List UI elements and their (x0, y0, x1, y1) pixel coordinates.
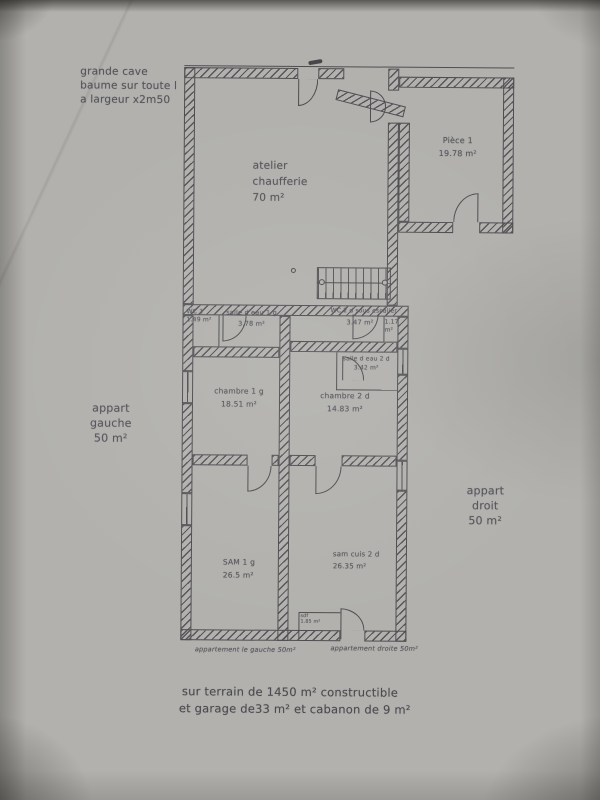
door-arc (298, 79, 318, 106)
wall-top-left (184, 67, 298, 79)
room-label-sdf: sdf 1.85 m² (300, 613, 326, 624)
floorplan-drawing: grande cave baume sur toute l a largeur … (0, 0, 600, 800)
wall-right-lower-c (395, 491, 407, 642)
door-leaf (315, 466, 316, 494)
room-label-chambre1: chambre 1 g 18.51 m² (198, 384, 280, 411)
room-area-wc2: 3.47 m² (347, 318, 381, 326)
room-label-wc2: WC 2 d sous escalier (331, 307, 397, 315)
door-arc (247, 466, 271, 492)
door-arc (340, 608, 364, 630)
staircase-post (319, 279, 325, 285)
door-leaf (477, 193, 478, 222)
room-label-chambre2: chambre 2 d 14.83 m² (304, 389, 386, 416)
wall-annex-top (399, 77, 514, 89)
wall-annex-bottom-a (398, 222, 453, 233)
wall-bottom-a (180, 629, 340, 641)
room-label-piece1: Pièce 1 19.78 m² (421, 134, 495, 161)
wall-right-upper-a (388, 69, 399, 91)
window-symbol (182, 371, 193, 403)
window-symbol (397, 349, 408, 375)
door-arc (315, 466, 341, 494)
footer-terrain-line2: et garage de33 m² et cabanon de 9 m² (179, 700, 449, 719)
wall-bottom-b (364, 630, 406, 641)
wall-chambre1-bottom-a (193, 454, 248, 465)
room-area-wc2-closet: 1.17 m² (384, 319, 406, 335)
wall-under-bath-right (290, 341, 397, 353)
floorplan-photo: grande cave baume sur toute l a largeur … (0, 0, 600, 800)
room-label-sde1: salle d eau 1 g 3.78 m² (224, 307, 278, 329)
staircase-post (382, 280, 388, 286)
wall-chambre2-bottom-b (342, 455, 397, 466)
wall-left-lower-b (181, 403, 193, 493)
room-label-wc1: WC 1 1.49 m² (187, 308, 217, 324)
wall-top-right (318, 68, 344, 79)
wall-chambre2-bottom-a (290, 455, 316, 466)
caption-appartement-droite: appartement droite 50m² (318, 644, 430, 653)
door-leaf (340, 608, 342, 639)
pen-mark (308, 59, 322, 65)
door-arc (453, 193, 478, 222)
wall-chambre1-bottom-b (272, 455, 279, 466)
wall-wc1-right (218, 315, 220, 346)
wall-under-bath-left (193, 346, 279, 358)
small-circle-mark (291, 268, 296, 273)
label-appart-gauche: appart gauche 50 m² (80, 400, 142, 445)
label-appart-droit: appart droit 50 m² (454, 483, 516, 528)
wall-left-lower-c (180, 525, 192, 640)
wall-annex-right (502, 77, 514, 233)
door-arc (370, 90, 386, 122)
wall-right-lower-b (397, 375, 409, 461)
window-symbol (396, 461, 407, 491)
label-grande-cave: grande cave baume sur toute l a largeur … (80, 64, 192, 107)
room-label-samcuis2: sam cuis 2 d 26.35 m² (333, 548, 395, 572)
door-leaf (370, 90, 372, 122)
window-symbol (181, 493, 192, 525)
room-label-sam1: SAM 1 g 26.5 m² (223, 555, 285, 581)
room-label-sde2: salle d eau 2 d 3.42 m² (338, 354, 394, 372)
footer-terrain-line1: sur terrain de 1450 m² constructible (182, 683, 442, 702)
room-label-atelier: atelier chaufferie 70 m² (252, 158, 342, 207)
door-leaf (247, 466, 248, 492)
wall-central-divider (277, 316, 290, 641)
wall-annex-bottom-b (479, 222, 513, 233)
wall-annex-left (398, 123, 410, 222)
door-leaf (298, 79, 299, 106)
caption-appartement-gauche: appartement le gauche 50m² (184, 645, 306, 654)
